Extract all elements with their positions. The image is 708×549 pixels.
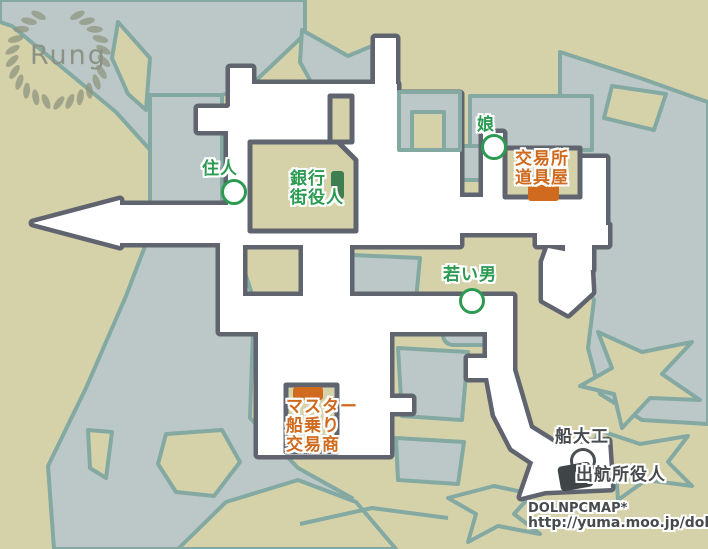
credit-url[interactable]: http://yuma.moo.jp/dolnpc/ bbox=[528, 514, 708, 533]
town-name: Rung bbox=[30, 40, 107, 71]
label-departure-official: 出航所役人 bbox=[576, 466, 666, 485]
label-master-line2: 船乗り bbox=[286, 417, 358, 436]
npc-dot-daughter bbox=[481, 134, 507, 160]
label-young-man-line1: 若い男 bbox=[443, 266, 497, 285]
label-departure-official-line1: 出航所役人 bbox=[576, 466, 666, 485]
label-resident-line1: 住人 bbox=[202, 160, 238, 179]
label-shipwright-line1: 船大工 bbox=[555, 428, 609, 447]
label-bank-line2: 街役人 bbox=[290, 189, 344, 208]
label-master-line1: マスター bbox=[286, 398, 358, 417]
label-shipwright: 船大工 bbox=[555, 428, 609, 447]
npc-dot-resident bbox=[221, 179, 247, 205]
label-trade-shop: 交易所 道具屋 bbox=[515, 150, 569, 188]
label-daughter: 娘 bbox=[477, 116, 495, 135]
label-trade-shop-line1: 交易所 bbox=[515, 150, 569, 169]
label-trade-shop-line2: 道具屋 bbox=[515, 169, 569, 188]
label-bank: 銀行 街役人 bbox=[290, 170, 344, 208]
label-bank-line1: 銀行 bbox=[290, 170, 344, 189]
label-master: マスター 船乗り 交易商 bbox=[286, 398, 358, 455]
label-daughter-line1: 娘 bbox=[477, 116, 495, 135]
npc-dot-young-man bbox=[459, 288, 485, 314]
label-resident: 住人 bbox=[202, 160, 238, 179]
town-map-page: Rung 住人 銀行 街役人 娘 交易所 道具屋 若い男 マスター 船乗り 交易… bbox=[0, 0, 708, 549]
label-master-line3: 交易商 bbox=[286, 436, 358, 455]
label-young-man: 若い男 bbox=[443, 266, 497, 285]
